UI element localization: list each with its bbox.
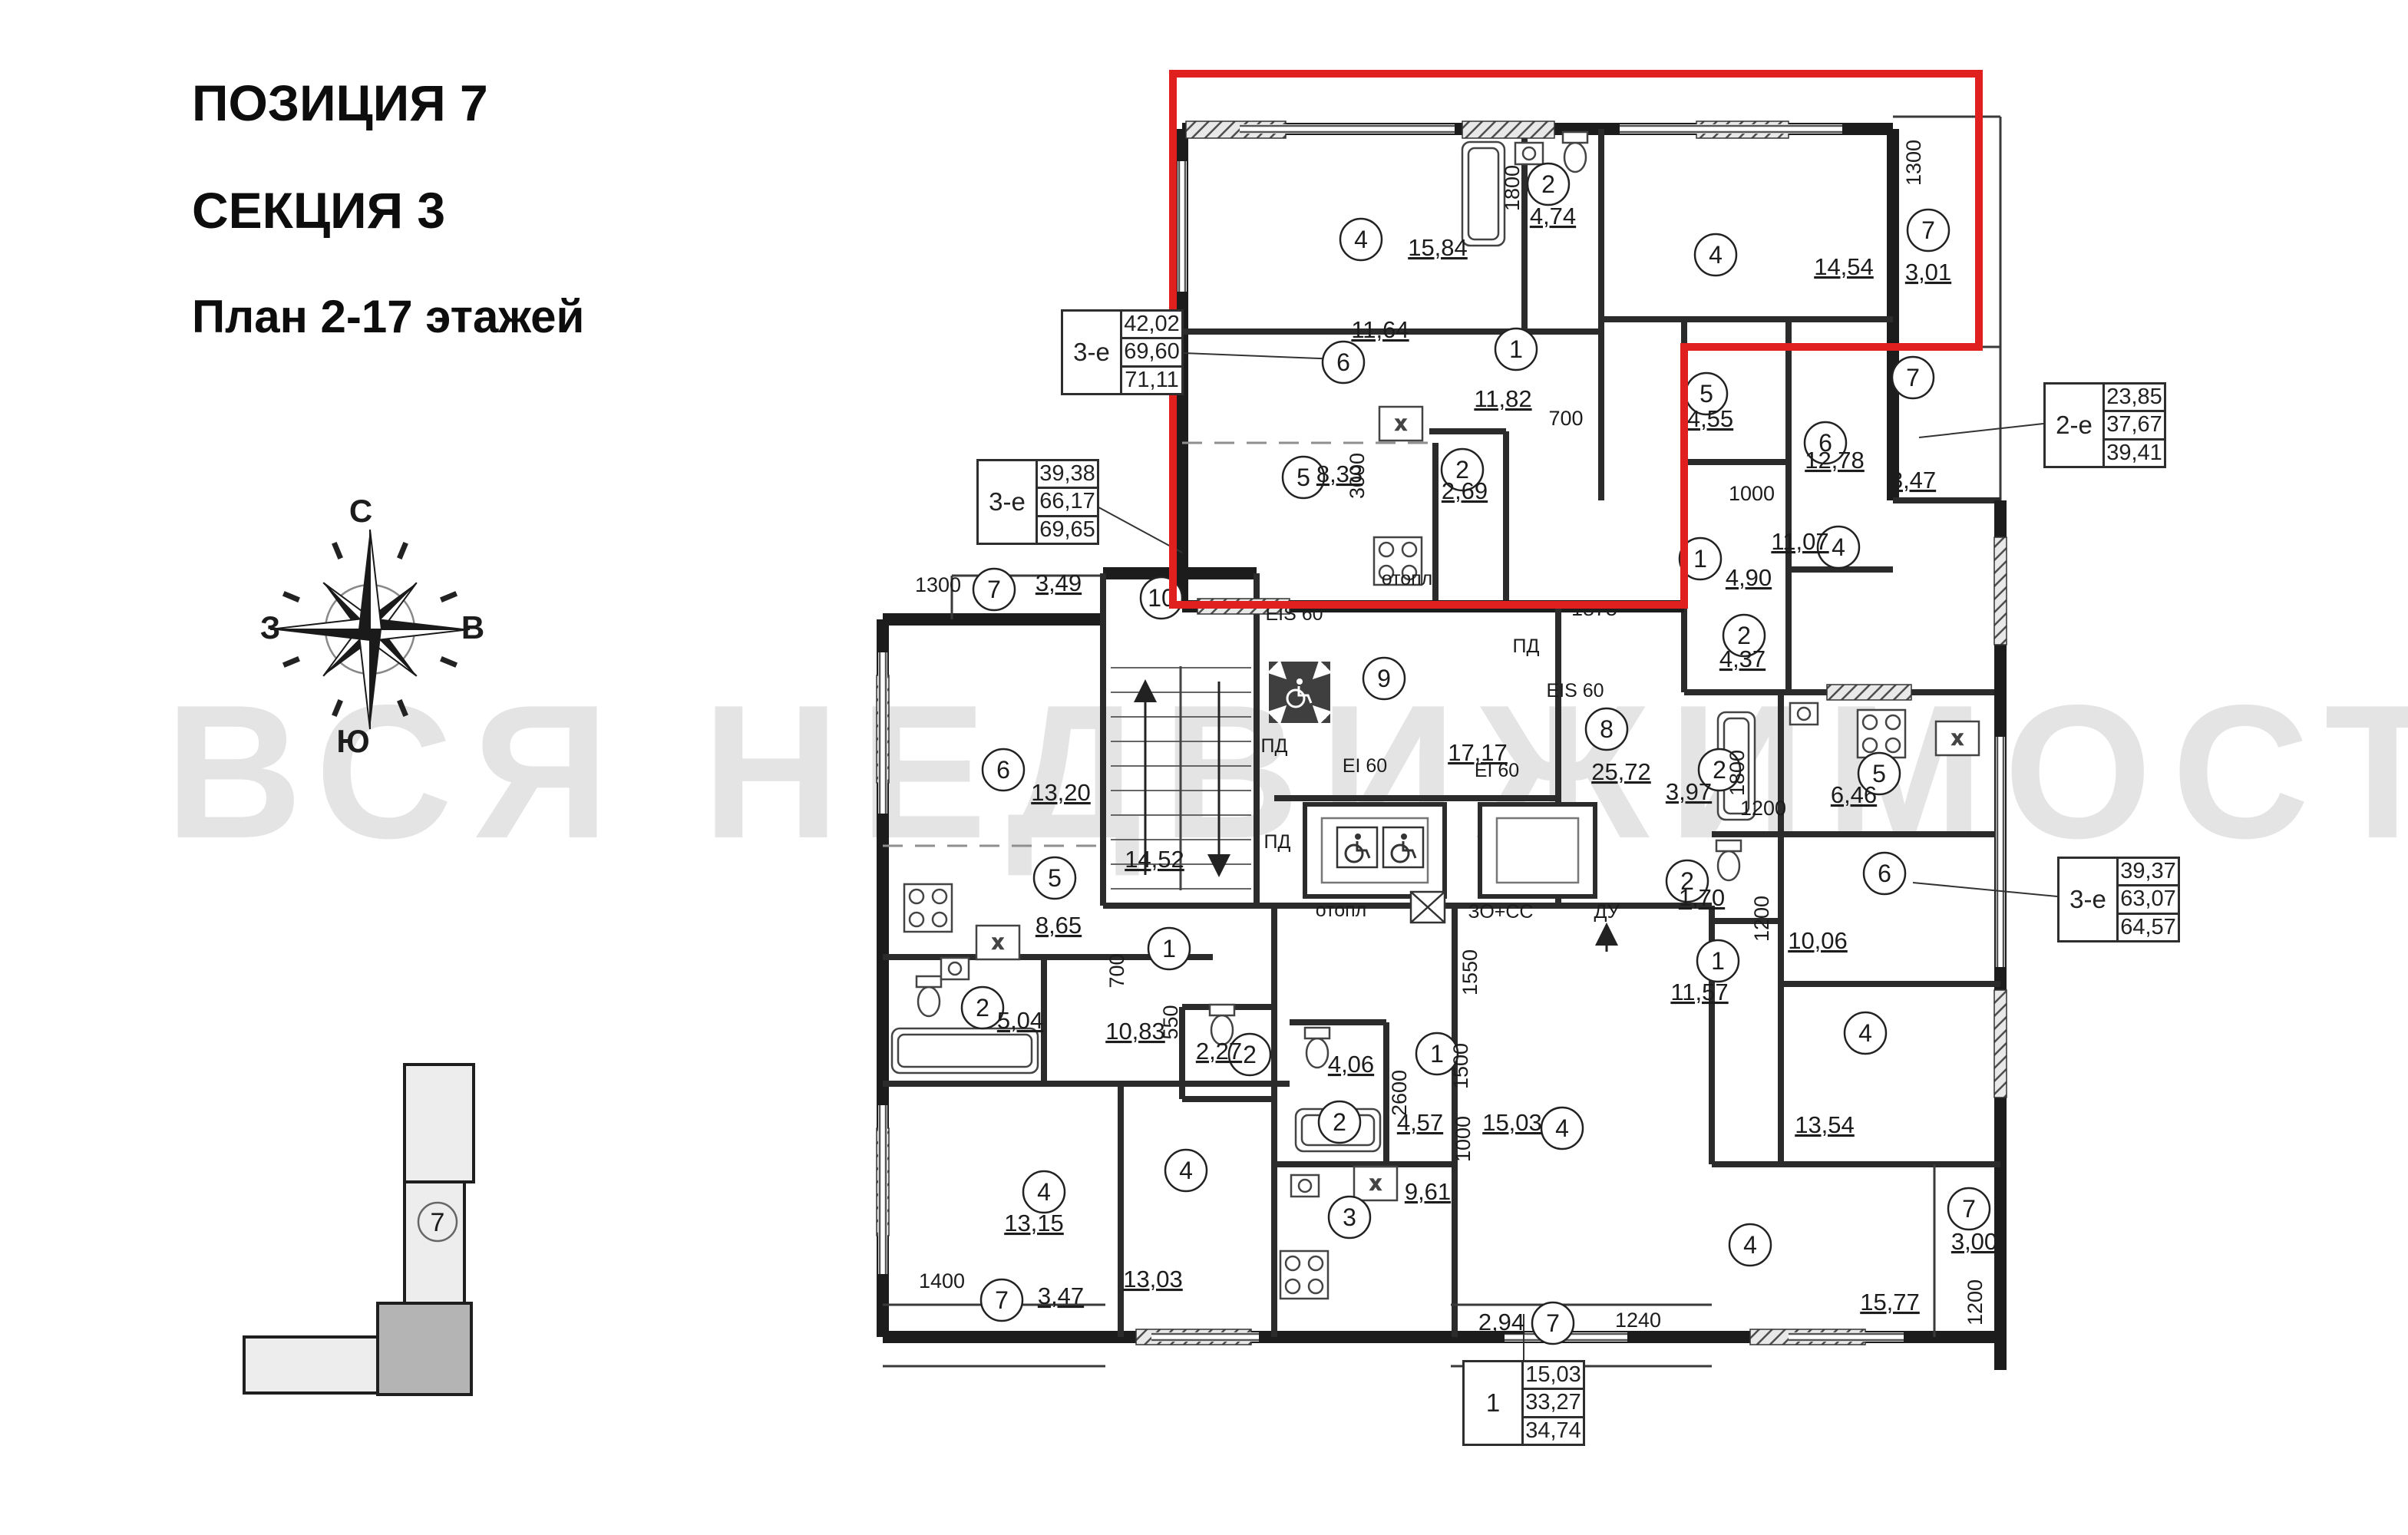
room-area-label: 2,94	[1478, 1309, 1524, 1335]
stove-burner	[1379, 543, 1393, 556]
room-area-label: 11,57	[1670, 979, 1728, 1005]
apartment-total-area-balcony: 71,11	[1122, 368, 1181, 393]
dimension-label: 1240	[1615, 1309, 1661, 1332]
spec-leader-line	[1913, 883, 2057, 896]
page-title-position: ПОЗИЦИЯ 7	[192, 74, 488, 132]
apartment-spec-box: 3-е 39,38 66,17 69,65	[976, 459, 1099, 545]
compass-tick	[441, 593, 456, 599]
apartment-type-label: 3-е	[2060, 859, 2119, 940]
room-area-label: 8,65	[1036, 912, 1082, 939]
stove-burner	[933, 890, 946, 903]
compass-point	[270, 629, 370, 641]
compass-point	[370, 629, 470, 641]
dimension-label: 3000	[1346, 453, 1369, 499]
stove-burner	[1402, 543, 1416, 556]
room-number-label: 1	[1711, 947, 1725, 975]
plan-note: отопл	[1382, 568, 1433, 589]
compass-point	[270, 618, 370, 629]
apartment-type-label: 2-е	[2046, 385, 2105, 466]
dimension-label: 1200	[1964, 1279, 1987, 1325]
room-number-label: 5	[1048, 864, 1062, 892]
room-number-label: 2	[976, 994, 989, 1022]
room-number-label: 6	[1878, 860, 1891, 887]
dimension-label: 1500	[1449, 1043, 1472, 1089]
room-area-label: 13,54	[1795, 1111, 1855, 1138]
room-number-label: 7	[1921, 216, 1935, 244]
plan-note: EI 60	[1343, 755, 1387, 777]
apartment-total-area: 69,60	[1122, 339, 1181, 367]
dimension-label: 1800	[1501, 165, 1524, 211]
compass-point	[358, 629, 370, 729]
room-number-label: 6	[1336, 348, 1350, 376]
apartment-total-area: 37,67	[2105, 412, 2164, 440]
room-area-label: 4,74	[1530, 203, 1576, 229]
room-area-label: 3,47	[1038, 1282, 1084, 1309]
dimension-label: 1550	[1458, 949, 1481, 995]
room-number-label: 7	[1906, 364, 1920, 391]
sink-drain	[1798, 708, 1810, 720]
room-number-label: 4	[1555, 1114, 1569, 1142]
room-number-label: 5	[1296, 464, 1310, 491]
compass-tick	[334, 543, 340, 558]
compass-point	[370, 618, 470, 629]
dimension-label: 1000	[1452, 1116, 1475, 1162]
room-area-label: 4,55	[1687, 405, 1733, 432]
room-number-label: 7	[1546, 1309, 1560, 1337]
dimension-label: 1800	[1726, 750, 1749, 796]
dimension-label: 1200	[1750, 896, 1773, 942]
room-area-label: 9,61	[1405, 1178, 1451, 1205]
stove-burner	[1863, 715, 1877, 729]
room-number-label: 4	[1832, 533, 1845, 561]
room-number-label: 1	[1430, 1040, 1444, 1068]
locator-section-number: 7	[431, 1208, 445, 1237]
hatched-wall-pier	[1827, 685, 1911, 700]
stove-burner	[1309, 1256, 1323, 1270]
locator-section	[405, 1065, 474, 1182]
toilet-tank	[917, 976, 941, 987]
room-number-label: 4	[1709, 241, 1723, 269]
toilet-tank	[1305, 1028, 1330, 1038]
apartment-spec-box: 2-е 23,85 37,67 39,41	[2043, 382, 2166, 468]
room-area-label: 3,47	[1890, 467, 1936, 494]
compass-label: В	[461, 609, 484, 645]
room-area-label: 13,20	[1031, 779, 1091, 806]
sink-drain	[949, 962, 961, 975]
room-area-label: 2,27	[1196, 1038, 1242, 1065]
compass-tick	[399, 543, 405, 558]
page-title-section: СЕКЦИЯ 3	[192, 181, 445, 239]
room-area-label: 6,46	[1831, 781, 1877, 808]
room-area-label: 12,78	[1805, 447, 1865, 474]
compass-label: Ю	[336, 723, 369, 759]
room-number-label: 4	[1179, 1157, 1193, 1184]
compass-rose: СВЮЗ	[260, 493, 484, 759]
stove-burner	[933, 913, 946, 926]
room-area-label: 11,82	[1474, 385, 1531, 412]
page-title-plan: План 2-17 этажей	[192, 290, 584, 343]
room-number-label: 2	[1333, 1108, 1346, 1136]
locator-wing	[244, 1337, 378, 1393]
plan-note: ДУ	[1594, 901, 1619, 923]
dimension-label: 700	[1548, 407, 1583, 430]
apartment-living-area: 39,37	[2119, 859, 2178, 886]
plan-note: ПД	[1264, 831, 1291, 853]
dimension-label: 1300	[915, 573, 961, 596]
room-area-label: 14,52	[1125, 846, 1184, 873]
toilet-icon	[1718, 851, 1739, 880]
room-area-label: 3,49	[1036, 569, 1082, 596]
apartment-spec-box: 3-е 39,37 63,07 64,57	[2057, 857, 2180, 942]
compass-tick	[283, 659, 299, 665]
room-number-label: 1	[1693, 545, 1707, 573]
compass-point	[370, 530, 382, 629]
apartment-total-area-balcony: 64,57	[2119, 915, 2178, 940]
compass-tick	[334, 700, 340, 715]
wheelchair-icon	[1355, 834, 1361, 840]
apartment-living-area: 23,85	[2105, 385, 2164, 412]
room-area-label: 11,07	[1771, 528, 1828, 555]
plan-note: EIS 60	[1546, 680, 1604, 701]
stove-burner	[1309, 1279, 1323, 1293]
toilet-tank	[1210, 1005, 1234, 1015]
compass-label: С	[349, 493, 372, 529]
apartment-total-area-balcony: 34,74	[1524, 1418, 1583, 1444]
room-number-label: 5	[1699, 380, 1713, 408]
apartment-total-area: 63,07	[2119, 886, 2178, 914]
apartment-type-label: 1	[1465, 1362, 1524, 1444]
room-area-label: 25,72	[1591, 758, 1651, 785]
room-area-label: 13,03	[1123, 1266, 1183, 1292]
apartment-total-area: 33,27	[1524, 1390, 1583, 1418]
apartment-living-area: 39,38	[1038, 461, 1097, 489]
room-number-label: 4	[1743, 1231, 1757, 1259]
dimension-label: 550	[1159, 1005, 1182, 1039]
room-number-label: 2	[1243, 1041, 1257, 1068]
wheelchair-icon	[1401, 834, 1407, 840]
room-number-label: 8	[1600, 715, 1614, 743]
room-number-label: 7	[995, 1286, 1009, 1314]
room-area-label: 11,64	[1351, 316, 1409, 343]
locator-section-7	[405, 1182, 464, 1303]
stove-burner	[1886, 715, 1900, 729]
room-area-label: 10,83	[1105, 1018, 1165, 1045]
apartment-living-area: 15,03	[1524, 1362, 1583, 1390]
stove-burner	[910, 890, 923, 903]
room-number-label: 1	[1509, 335, 1523, 363]
stove-burner	[1863, 738, 1877, 752]
wheelchair-refuge-area	[1269, 662, 1330, 723]
hatched-wall-pier	[1994, 990, 2007, 1098]
room-area-label: 1,70	[1679, 884, 1725, 911]
room-number-label: 4	[1037, 1178, 1051, 1206]
table-x-label: x	[1371, 1171, 1381, 1194]
toilet-icon	[1564, 143, 1586, 172]
apartment-type-label: 3-е	[1063, 312, 1122, 393]
room-area-label: 4,06	[1328, 1051, 1374, 1078]
plan-note: отопл	[1316, 900, 1367, 921]
hatched-wall-pier	[1462, 121, 1554, 138]
room-number-label: 4	[1354, 226, 1368, 253]
locator-section-highlighted	[378, 1303, 471, 1395]
room-area-label: 2,69	[1442, 477, 1488, 504]
compass-tick	[283, 593, 299, 599]
apartment-living-area: 42,02	[1122, 312, 1181, 339]
room-area-label: 5,04	[997, 1007, 1043, 1034]
apartment-total-area-balcony: 69,65	[1038, 517, 1097, 543]
room-area-label: 4,90	[1726, 564, 1772, 591]
table-x-label: x	[1953, 726, 1963, 749]
room-number-label: 2	[1713, 756, 1726, 784]
table-x-label: x	[1396, 411, 1406, 434]
apartment-spec-box: 1 15,03 33,27 34,74	[1462, 1360, 1585, 1446]
room-number-label: 4	[1858, 1019, 1872, 1047]
table-x-label: x	[993, 930, 1003, 953]
hatched-wall-pier	[1994, 537, 2007, 645]
building-locator: 7	[244, 1065, 474, 1395]
room-area-label: 15,77	[1860, 1289, 1920, 1315]
room-number-label: 3	[1343, 1203, 1356, 1231]
apartment-spec-box: 3-е 42,02 69,60 71,11	[1061, 309, 1184, 395]
dimension-label: 1200	[1740, 797, 1786, 820]
plan-note: ПД	[1513, 635, 1540, 657]
toilet-tank	[1716, 840, 1741, 851]
windows	[880, 126, 2003, 1340]
room-number-label: 2	[1541, 170, 1555, 198]
room-number-label: 7	[987, 576, 1001, 603]
plan-note: EI 60	[1475, 760, 1519, 781]
apartment-type-label: 3-е	[979, 461, 1038, 543]
wheelchair-icon	[1296, 678, 1303, 685]
dimension-label: 2600	[1388, 1070, 1411, 1116]
dimension-label: 1300	[1902, 140, 1925, 186]
dimension-label: 700	[1105, 953, 1128, 988]
stove-burner	[1886, 738, 1900, 752]
apartment-total-area: 66,17	[1038, 489, 1097, 517]
room-area-label: 13,15	[1004, 1210, 1064, 1236]
compass-tick	[441, 659, 456, 665]
room-area-label: 3,97	[1666, 778, 1712, 805]
sink-drain	[1299, 1180, 1311, 1192]
room-number-label: 9	[1377, 665, 1391, 692]
plan-note: ЗО+СС	[1468, 901, 1534, 923]
room-area-label: 4,37	[1719, 645, 1766, 672]
room-area-label: 15,03	[1482, 1109, 1542, 1136]
room-number-label: 6	[996, 756, 1010, 784]
compass-tick	[399, 700, 405, 715]
room-area-label: 14,54	[1814, 253, 1874, 280]
toilet-icon	[918, 987, 940, 1016]
plan-note: ПД	[1261, 735, 1288, 757]
spec-leader-line	[1919, 424, 2043, 437]
room-number-label: 7	[1962, 1195, 1976, 1223]
stove-burner	[910, 913, 923, 926]
dimension-label: 1400	[919, 1269, 965, 1292]
apartment-total-area-balcony: 39,41	[2105, 441, 2164, 466]
toilet-tank	[1563, 132, 1587, 143]
room-area-label: 3,00	[1951, 1228, 1997, 1255]
room-number-label: 1	[1162, 935, 1176, 962]
dimension-label: 1000	[1729, 482, 1775, 505]
room-area-label: 15,84	[1408, 234, 1468, 261]
compass-label: З	[260, 609, 280, 645]
room-area-label: 10,06	[1788, 927, 1848, 954]
stove-burner	[1286, 1256, 1300, 1270]
toilet-icon	[1306, 1038, 1328, 1068]
spec-leader-line	[1184, 353, 1339, 359]
compass-point	[370, 629, 382, 729]
sink-drain	[1523, 147, 1535, 160]
room-area-label: 3,01	[1905, 259, 1951, 286]
spec-leader-line	[1092, 503, 1182, 553]
stove-burner	[1286, 1279, 1300, 1293]
compass-point	[358, 530, 370, 629]
elevators	[1305, 804, 1595, 896]
